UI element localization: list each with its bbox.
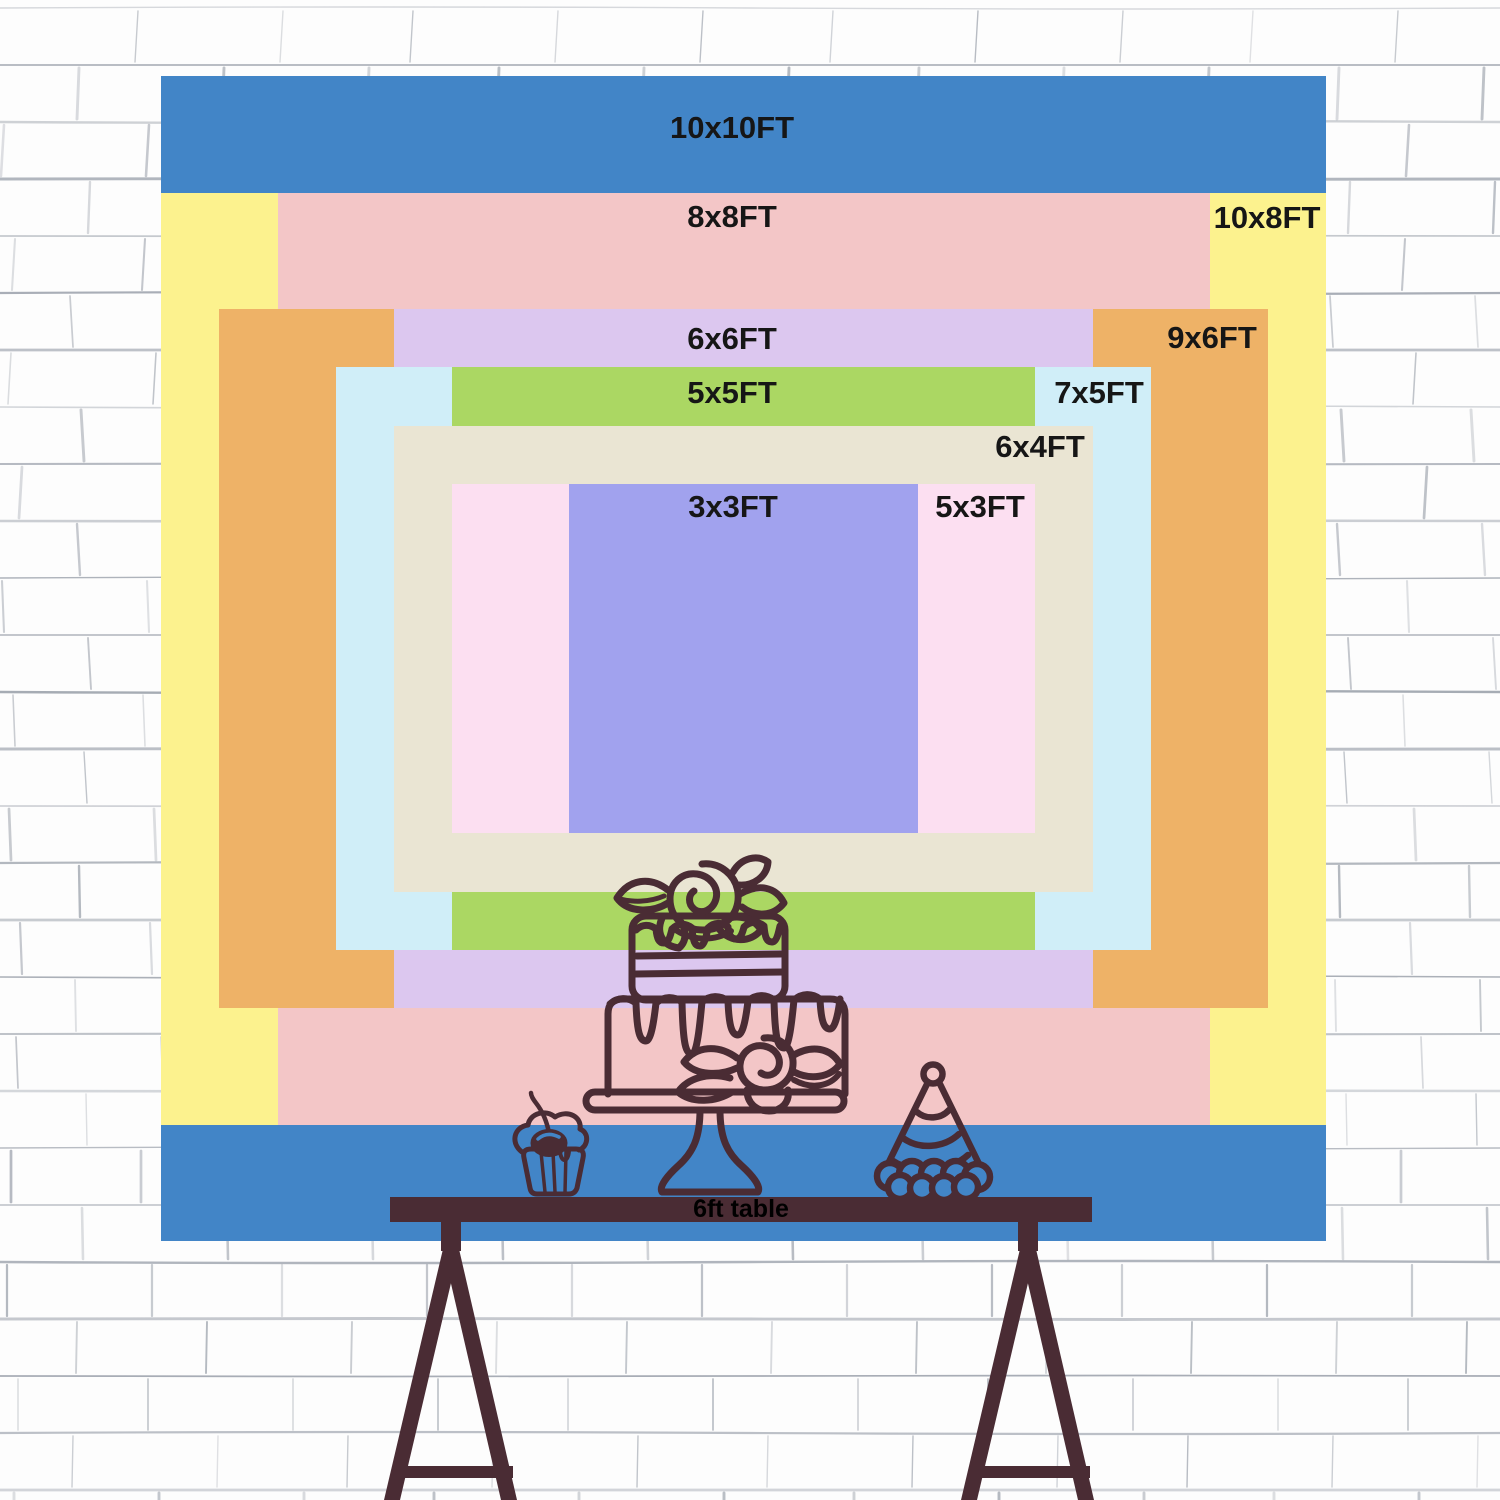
table-leg-left — [384, 1221, 517, 1500]
cake-leaf — [740, 888, 784, 914]
cake-tier-line — [637, 954, 781, 956]
cake-petal — [678, 1076, 732, 1101]
wrapper-pleat — [541, 1152, 545, 1192]
cake-tier-line — [635, 972, 783, 974]
cupcake-icon — [515, 1093, 587, 1194]
hat-stripe — [903, 1134, 959, 1146]
doodle-overlay — [0, 0, 1500, 1500]
table-size-label: 6ft table — [390, 1196, 1092, 1222]
hat-stripe — [917, 1110, 949, 1117]
cake-leaf-vein — [617, 896, 664, 901]
wrapper-pleat — [553, 1152, 555, 1192]
cake-petal — [684, 1049, 737, 1074]
backdrop-size-chart: 10x10FT10x8FT8x8FT9x6FT6x6FT7x5FT5x5FT6x… — [0, 0, 1500, 1500]
hat-cone-left — [884, 1082, 928, 1172]
cake-stand — [661, 1110, 758, 1192]
hat-trim — [877, 1161, 990, 1200]
table — [384, 1197, 1094, 1500]
cake-bottom-drip — [610, 995, 840, 1054]
table-leg-right — [961, 1221, 1094, 1500]
hat-cone-right — [939, 1082, 982, 1170]
cake-rose-bottom — [740, 1038, 793, 1090]
cake-petal — [792, 1049, 840, 1077]
birthday-cake-icon — [586, 858, 845, 1192]
party-hat-icon — [877, 1065, 990, 1201]
